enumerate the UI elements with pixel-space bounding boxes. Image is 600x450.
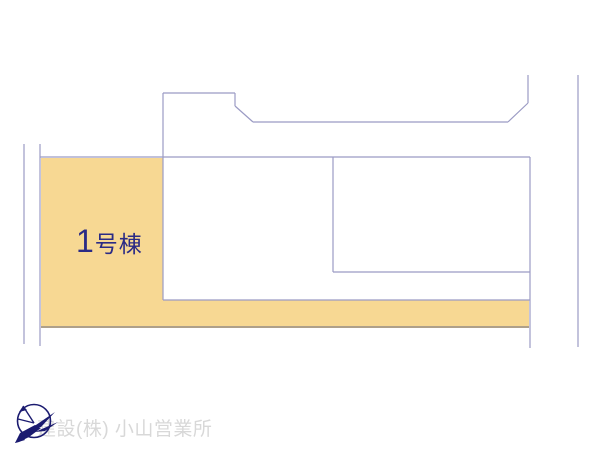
plot-1-number: 1 xyxy=(76,224,95,258)
plot-1-suffix: 号棟 xyxy=(95,231,143,257)
compass-bird-logo-icon xyxy=(11,397,59,447)
watermark-text: 建設(株) 小山営業所 xyxy=(37,414,212,441)
watermark: 建設(株) 小山営業所 xyxy=(0,394,260,450)
site-plan: 1 号棟 建設(株) 小山営業所 xyxy=(0,0,600,450)
plot-1-label: 1 号棟 xyxy=(76,224,143,258)
